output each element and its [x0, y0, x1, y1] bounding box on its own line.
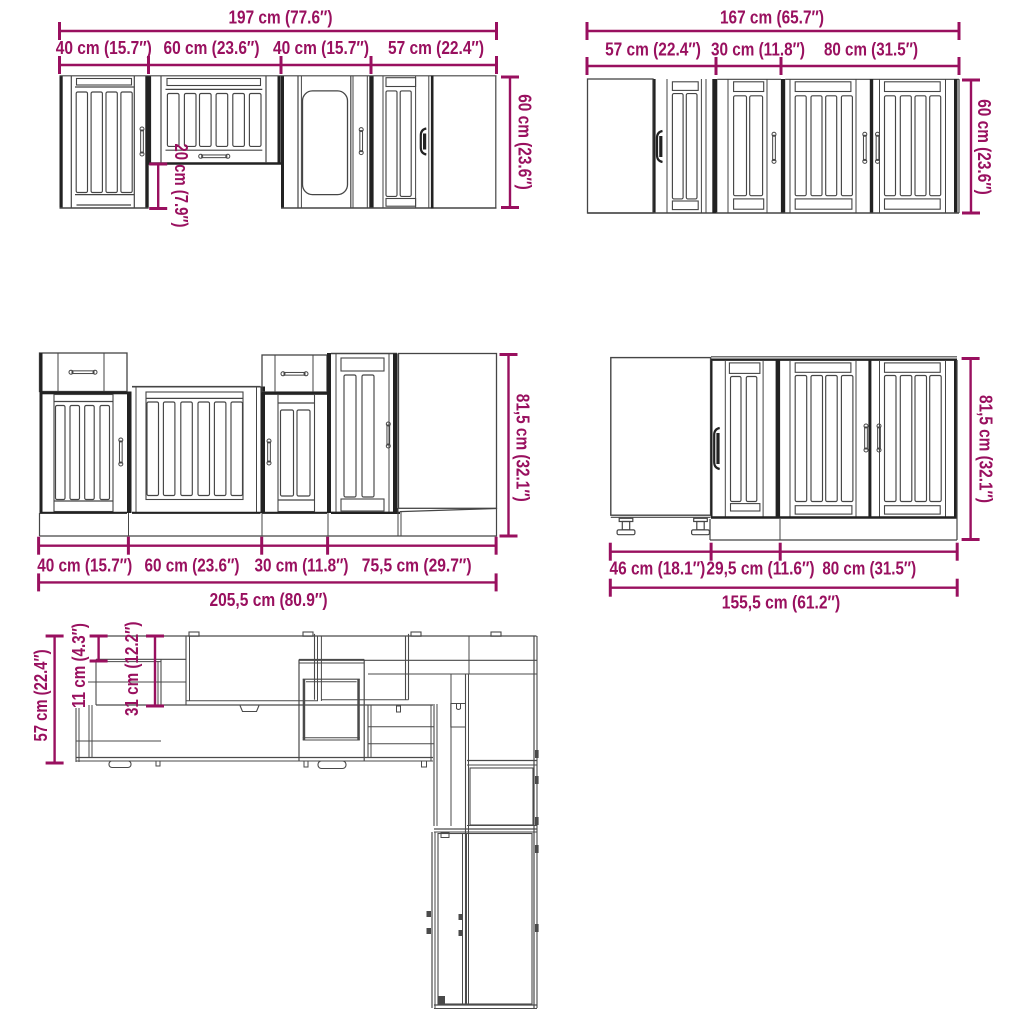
svg-text:197 cm (77.6″): 197 cm (77.6″) — [229, 8, 333, 28]
svg-text:57 cm (22.4″): 57 cm (22.4″) — [31, 649, 51, 741]
svg-text:20 cm (7.9″): 20 cm (7.9″) — [171, 144, 191, 228]
svg-text:81,5 cm (32.1″): 81,5 cm (32.1″) — [513, 394, 533, 502]
svg-text:40 cm (15.7″): 40 cm (15.7″) — [56, 38, 152, 58]
svg-text:155,5 cm (61.2″): 155,5 cm (61.2″) — [722, 593, 840, 613]
svg-text:29,5 cm (11.6″): 29,5 cm (11.6″) — [706, 559, 814, 579]
svg-text:40 cm (15.7″): 40 cm (15.7″) — [273, 38, 369, 58]
svg-text:40 cm (15.7″): 40 cm (15.7″) — [37, 556, 132, 576]
svg-text:30 cm (11.8″): 30 cm (11.8″) — [255, 556, 349, 576]
svg-text:60 cm (23.6″): 60 cm (23.6″) — [164, 38, 260, 58]
svg-text:205,5 cm (80.9″): 205,5 cm (80.9″) — [210, 590, 328, 610]
svg-text:80 cm (31.5″): 80 cm (31.5″) — [824, 40, 918, 60]
svg-text:60 cm (23.6″): 60 cm (23.6″) — [974, 99, 994, 195]
svg-text:81,5 cm (32.1″): 81,5 cm (32.1″) — [976, 395, 996, 503]
svg-text:75,5 cm (29.7″): 75,5 cm (29.7″) — [362, 556, 472, 576]
svg-text:30 cm (11.8″): 30 cm (11.8″) — [711, 40, 805, 60]
svg-text:46 cm (18.1″): 46 cm (18.1″) — [610, 559, 706, 579]
svg-text:80 cm (31.5″): 80 cm (31.5″) — [822, 559, 916, 579]
svg-text:60 cm (23.6″): 60 cm (23.6″) — [515, 94, 535, 190]
svg-text:60 cm (23.6″): 60 cm (23.6″) — [145, 556, 240, 576]
svg-text:31 cm (12.2″): 31 cm (12.2″) — [122, 622, 142, 717]
svg-text:11 cm (4.3″): 11 cm (4.3″) — [69, 623, 89, 708]
svg-text:57 cm (22.4″): 57 cm (22.4″) — [388, 38, 484, 58]
svg-text:167 cm (65.7″): 167 cm (65.7″) — [720, 8, 824, 28]
svg-text:57 cm (22.4″): 57 cm (22.4″) — [605, 40, 701, 60]
